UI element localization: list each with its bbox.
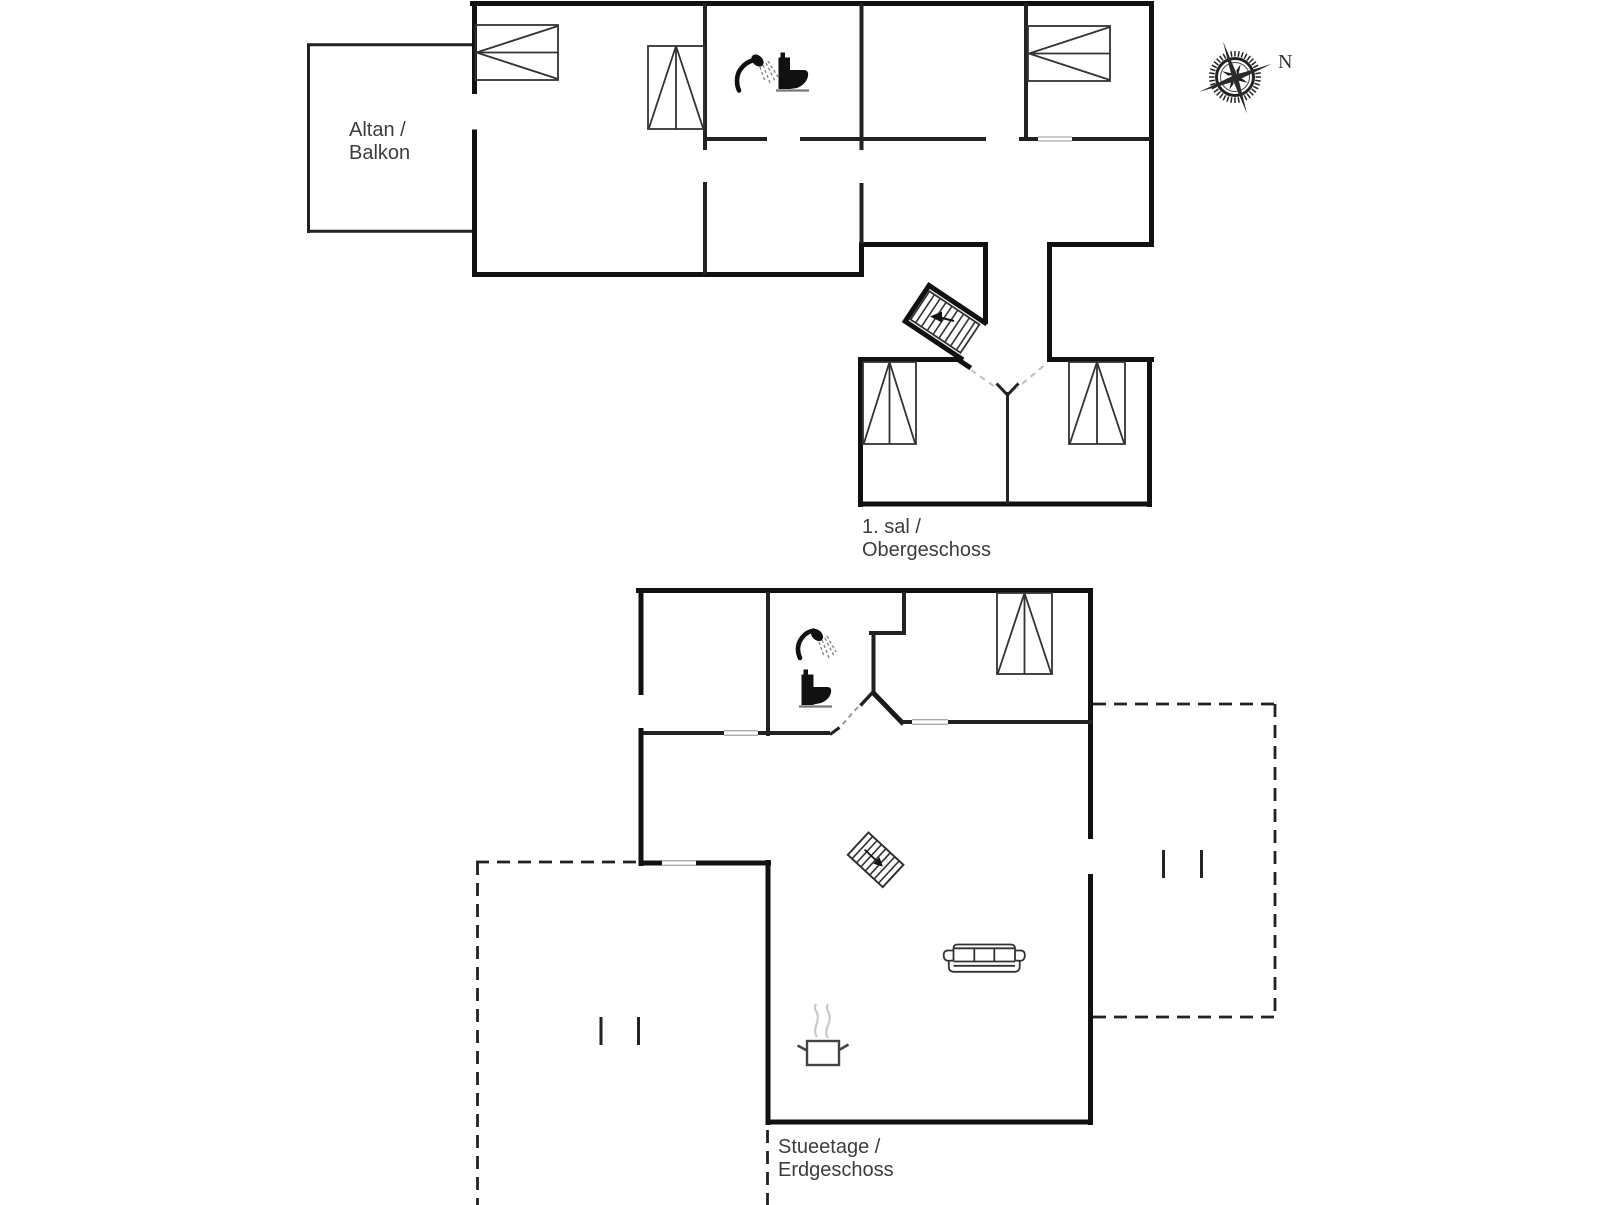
svg-text:1. sal /: 1. sal / bbox=[862, 516, 921, 538]
svg-text:Balkon: Balkon bbox=[349, 142, 410, 164]
svg-text:N: N bbox=[1278, 51, 1292, 73]
svg-text:Erdgeschoss: Erdgeschoss bbox=[778, 1159, 894, 1181]
svg-text:Altan /: Altan / bbox=[349, 119, 406, 141]
svg-text:Stueetage /: Stueetage / bbox=[778, 1136, 881, 1158]
svg-text:Obergeschoss: Obergeschoss bbox=[862, 539, 991, 561]
